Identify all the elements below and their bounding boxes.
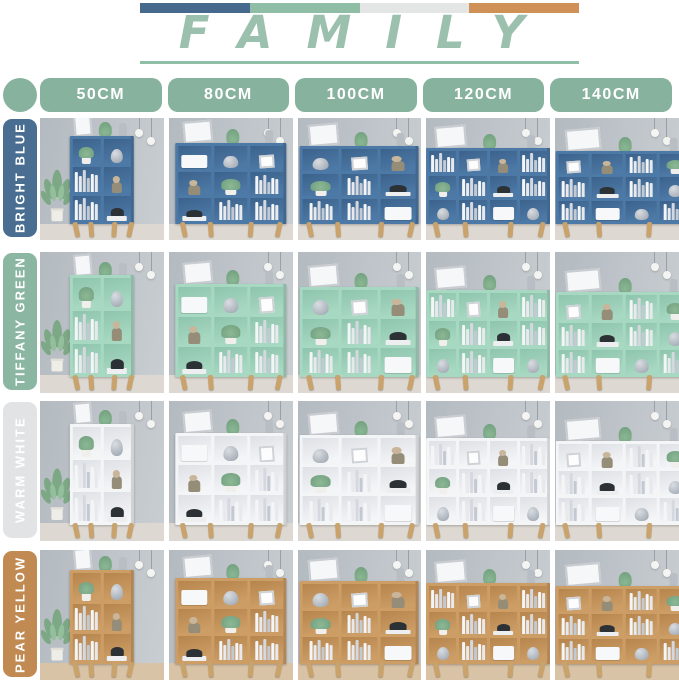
- bookcase: [175, 284, 286, 377]
- shelf-item-hat: [592, 614, 623, 636]
- shelf-item-plant: [429, 612, 456, 635]
- wooden-leg: [508, 222, 514, 237]
- wooden-leg: [378, 662, 384, 677]
- wooden-leg: [646, 222, 652, 237]
- shelf-item-hat: [103, 344, 131, 374]
- shelf-item-books: [626, 444, 657, 468]
- shelf-item-books: [520, 441, 547, 466]
- shelf-item-vase: [660, 471, 679, 495]
- shelf-item-hat: [490, 469, 517, 494]
- shelf-cube: [250, 495, 283, 522]
- shelf-cube: [660, 323, 679, 347]
- shelf-cube: [490, 293, 517, 318]
- shelf-cube: [592, 639, 623, 661]
- picture-frame-icon: [308, 122, 340, 147]
- shelf-cube: [103, 634, 131, 661]
- shelf-grid: [426, 148, 550, 224]
- row-label-bright-blue: BRIGHT BLUE: [3, 119, 37, 237]
- shelf-grid: [175, 284, 286, 377]
- shelf-cube: [103, 427, 131, 457]
- shelf-cube: [558, 471, 589, 495]
- shelf-cube: [429, 349, 456, 374]
- shelf-cube: [460, 293, 487, 318]
- shelf-item-books: [660, 639, 679, 661]
- shelf-item-doll: [103, 460, 131, 490]
- size-button-50cm[interactable]: 50CM: [40, 78, 162, 112]
- shelf-cube: [660, 639, 679, 661]
- shelf-item-books: [73, 167, 101, 192]
- picture-frame-icon: [434, 560, 467, 585]
- shelf-cube: [342, 348, 378, 374]
- picture-frame-icon: [182, 120, 212, 144]
- shelf-cube: [380, 174, 416, 196]
- vase-icon: [527, 276, 535, 290]
- shelf-item-plant: [303, 174, 339, 196]
- shelf-item-books: [73, 604, 101, 631]
- picture-frame-icon: [564, 268, 600, 293]
- row-photos: [40, 118, 679, 240]
- plant-sprig-icon: [619, 572, 632, 587]
- shelf-cube: [626, 323, 657, 347]
- shelf-item-hat: [178, 495, 211, 522]
- shelf-cube: [178, 317, 211, 344]
- photo-warm-white-80cm: [169, 401, 293, 541]
- shelf-cube: [429, 497, 456, 522]
- shelf-item-hat: [178, 636, 211, 661]
- size-button-140cm[interactable]: 140CM: [550, 78, 672, 112]
- shelf-item-vase: [429, 638, 456, 661]
- shelf-cube: [250, 436, 283, 463]
- shelf-cube: [460, 321, 487, 346]
- shelf-cube: [342, 467, 378, 493]
- plant-sprig-icon: [483, 134, 496, 149]
- hanging-lamp-icon: [648, 401, 674, 431]
- shelf-item-frame: [250, 581, 283, 606]
- shelf-item-frame: [460, 586, 487, 609]
- shelf-cube: [520, 200, 547, 221]
- shelf-item-plant: [429, 321, 456, 346]
- picture-frame-icon: [434, 414, 467, 439]
- shelf-item-books: [250, 317, 283, 344]
- wooden-leg: [378, 222, 384, 237]
- shelf-item-books: [73, 344, 101, 374]
- plant-sprig-icon: [226, 129, 239, 144]
- shelf-cube: [520, 612, 547, 635]
- shelf-grid: [426, 583, 550, 664]
- shelf-item-books: [342, 199, 378, 221]
- shelf-cube: [380, 290, 416, 316]
- color-dot: [3, 78, 37, 112]
- shelf-cube: [626, 350, 657, 374]
- shelf-item-doll: [490, 586, 517, 609]
- shelf-item-books: [520, 176, 547, 197]
- shelf-item-books: [214, 636, 247, 661]
- shelf-cube: [592, 589, 623, 611]
- photo-bright-blue-120cm: [426, 118, 550, 240]
- shelf-grid: [175, 433, 286, 525]
- picture-frame-icon: [73, 253, 93, 276]
- shelf-grid: [555, 292, 679, 377]
- shelf-item-books: [250, 465, 283, 492]
- shelf-item-books: [429, 441, 456, 466]
- shelf-item-frame: [250, 287, 283, 314]
- vase-icon: [397, 568, 405, 582]
- shelf-cube: [250, 172, 283, 195]
- shelf-cube: [592, 154, 623, 174]
- shelf-cube: [429, 321, 456, 346]
- shelf-cube: [626, 295, 657, 319]
- shelf-item-plant: [214, 609, 247, 634]
- shelf-item-doll: [103, 604, 131, 631]
- shelf-item-hat: [380, 174, 416, 196]
- plant-sprig-icon: [355, 132, 368, 147]
- shelf-cube: [178, 347, 211, 374]
- shelf-item-frame: [558, 444, 589, 468]
- shelf-item-frame: [250, 436, 283, 463]
- picture-frame-icon: [182, 260, 212, 284]
- shelf-item-doll: [592, 589, 623, 611]
- shelf-item-books: [460, 497, 487, 522]
- shelf-item-vase: [429, 200, 456, 221]
- vase-icon: [265, 130, 273, 144]
- shelf-item-box: [592, 639, 623, 661]
- shelf-item-books: [342, 174, 378, 196]
- shelf-cube: [558, 498, 589, 522]
- shelf-cube: [380, 438, 416, 464]
- shelf-cube: [460, 151, 487, 172]
- shelf-cube: [103, 139, 131, 164]
- plant-sprig-icon: [355, 273, 368, 288]
- shelf-cube: [380, 637, 416, 661]
- shelf-grid: [175, 143, 286, 224]
- shelf-cube: [592, 471, 623, 495]
- bookcase: [175, 578, 286, 664]
- shelf-item-books: [342, 637, 378, 661]
- shelf-item-books: [460, 469, 487, 494]
- bookcase: [70, 424, 134, 525]
- shelf-item-plant: [73, 573, 101, 600]
- shelf-item-plant: [429, 176, 456, 197]
- photo-tiffany-green-140cm: [555, 252, 679, 393]
- shelf-item-frame: [558, 154, 589, 174]
- shelf-item-books: [303, 637, 339, 661]
- shelf-item-frame: [250, 146, 283, 169]
- shelf-cube: [660, 350, 679, 374]
- shelf-cube: [660, 471, 679, 495]
- shelf-item-books: [460, 176, 487, 197]
- shelf-item-books: [342, 611, 378, 635]
- shelf-cube: [490, 321, 517, 346]
- shelf-item-frame: [460, 151, 487, 172]
- shelf-cube: [303, 290, 339, 316]
- shelf-item-books: [520, 321, 547, 346]
- picture-frame-icon: [73, 118, 93, 137]
- wooden-leg: [508, 662, 514, 677]
- shelf-cube: [429, 586, 456, 609]
- bookcase: [70, 570, 134, 664]
- shelf-item-vase: [303, 149, 339, 171]
- shelf-item-vase: [626, 201, 657, 221]
- picture-frame-icon: [564, 562, 600, 587]
- bookcase: [426, 148, 550, 224]
- shelf-item-frame: [558, 295, 589, 319]
- shelf-item-books: [460, 349, 487, 374]
- shelf-cube: [660, 295, 679, 319]
- shelf-cube: [250, 347, 283, 374]
- shelf-item-plant: [660, 444, 679, 468]
- floor: [426, 224, 550, 240]
- vase-icon: [669, 573, 677, 587]
- bookcase: [70, 275, 134, 377]
- shelf-cube: [73, 573, 101, 600]
- shelf-cube: [520, 441, 547, 466]
- photo-warm-white-120cm: [426, 401, 550, 541]
- shelf-item-hat: [592, 323, 623, 347]
- shelf-item-vase: [303, 438, 339, 464]
- shelf-grid: [426, 438, 550, 525]
- shelf-item-frame: [342, 149, 378, 171]
- shelf-item-books: [303, 199, 339, 221]
- shelf-item-box: [380, 496, 416, 522]
- shelf-cube: [660, 498, 679, 522]
- shelf-cube: [342, 611, 378, 635]
- picture-frame-icon: [434, 266, 467, 291]
- shelf-item-books: [520, 151, 547, 172]
- shelf-cube: [73, 278, 101, 308]
- size-button-120cm[interactable]: 120CM: [423, 78, 545, 112]
- shelf-item-books: [520, 586, 547, 609]
- shelf-item-frame: [342, 290, 378, 316]
- shelf-cube: [626, 614, 657, 636]
- vase-icon: [265, 420, 273, 434]
- shelf-grid: [70, 570, 134, 664]
- shelf-grid: [300, 435, 419, 525]
- picture-frame-icon: [308, 412, 340, 437]
- shelf-item-vase: [214, 146, 247, 169]
- shelf-cube: [660, 444, 679, 468]
- photo-bright-blue-80cm: [169, 118, 293, 240]
- bookcase: [426, 438, 550, 525]
- plant-sprig-icon: [226, 270, 239, 285]
- shelf-cube: [103, 167, 131, 192]
- shelf-item-books: [460, 638, 487, 661]
- vase-icon: [118, 411, 126, 425]
- shelf-item-frame: [342, 584, 378, 608]
- photo-tiffany-green-120cm: [426, 252, 550, 393]
- shelf-item-books: [626, 177, 657, 197]
- hanging-lamp-icon: [133, 401, 159, 431]
- plant-sprig-icon: [99, 122, 112, 137]
- shelf-cube: [380, 319, 416, 345]
- shelf-cube: [460, 586, 487, 609]
- shelf-item-books: [214, 198, 247, 221]
- shelf-cube: [250, 146, 283, 169]
- shelf-cube: [303, 637, 339, 661]
- shelf-cube: [660, 154, 679, 174]
- shelf-cube: [520, 469, 547, 494]
- shelf-cube: [303, 467, 339, 493]
- shelf-item-doll: [490, 151, 517, 172]
- shelf-item-books: [626, 614, 657, 636]
- shelf-item-vase: [303, 290, 339, 316]
- shelf-cube: [460, 200, 487, 221]
- picture-frame-icon: [564, 127, 600, 152]
- shelf-item-hat: [592, 177, 623, 197]
- bookcase: [70, 136, 134, 224]
- shelf-item-box: [490, 200, 517, 221]
- photo-tiffany-green-100cm: [298, 252, 422, 393]
- size-button-80cm[interactable]: 80CM: [168, 78, 290, 112]
- shelf-cube: [520, 176, 547, 197]
- wooden-leg: [378, 523, 384, 538]
- shelf-cube: [380, 348, 416, 374]
- shelf-item-vase: [520, 349, 547, 374]
- shelf-grid: [555, 151, 679, 224]
- shelf-cube: [178, 287, 211, 314]
- shelf-item-vase: [660, 177, 679, 197]
- shelf-cube: [342, 290, 378, 316]
- shelf-item-hat: [380, 319, 416, 345]
- photo-tiffany-green-80cm: [169, 252, 293, 393]
- plant-sprig-icon: [355, 567, 368, 582]
- shelf-item-books: [660, 498, 679, 522]
- shelf-item-books: [558, 201, 589, 221]
- shelf-cube: [342, 637, 378, 661]
- shelf-grid: [555, 441, 679, 525]
- shelf-item-box: [380, 199, 416, 221]
- shelf-cube: [592, 177, 623, 197]
- hanging-lamp-icon: [133, 118, 159, 148]
- picture-frame-icon: [308, 263, 340, 288]
- shelf-grid: [70, 424, 134, 525]
- shelf-item-plant: [660, 295, 679, 319]
- shelf-item-doll: [103, 167, 131, 192]
- shelf-cube: [626, 154, 657, 174]
- shelf-item-books: [73, 492, 101, 522]
- shelf-cube: [303, 174, 339, 196]
- photo-pear-yellow-140cm: [555, 550, 679, 680]
- picture-frame-icon: [564, 417, 600, 442]
- shelf-item-vase: [626, 498, 657, 522]
- wooden-leg: [596, 523, 602, 538]
- shelf-cube: [178, 581, 211, 606]
- floor: [169, 663, 293, 680]
- shelf-item-plant: [303, 611, 339, 635]
- floor: [169, 375, 293, 393]
- shelf-cube: [214, 609, 247, 634]
- shelf-item-vase: [520, 638, 547, 661]
- bookcase: [555, 441, 679, 525]
- picture-frame-icon: [182, 555, 212, 579]
- shelf-item-frame: [460, 293, 487, 318]
- shelf-cube: [490, 151, 517, 172]
- plant-sprig-icon: [619, 278, 632, 293]
- shelf-grid: [300, 581, 419, 664]
- shelf-cube: [626, 177, 657, 197]
- vase-icon: [265, 271, 273, 285]
- size-buttons: 50CM 80CM 100CM 120CM 140CM: [40, 78, 672, 112]
- shelf-item-box: [178, 436, 211, 463]
- shelf-item-doll: [380, 438, 416, 464]
- shelf-cube: [73, 139, 101, 164]
- shelf-cube: [380, 584, 416, 608]
- shelf-item-books: [73, 460, 101, 490]
- shelf-item-box: [490, 638, 517, 661]
- shelf-item-vase: [303, 584, 339, 608]
- shelf-item-vase: [214, 436, 247, 463]
- shelf-item-hat: [490, 321, 517, 346]
- shelf-cube: [558, 589, 589, 611]
- shelf-cube: [429, 293, 456, 318]
- shelf-cube: [380, 199, 416, 221]
- shelf-item-books: [429, 151, 456, 172]
- shelf-item-books: [342, 348, 378, 374]
- shelf-cube: [490, 497, 517, 522]
- title-underline: [140, 61, 579, 64]
- shelf-item-box: [592, 201, 623, 221]
- shelf-cube: [303, 584, 339, 608]
- shelf-cube: [73, 311, 101, 341]
- shelf-cube: [342, 149, 378, 171]
- shelf-cube: [178, 172, 211, 195]
- shelf-cube: [342, 199, 378, 221]
- bookcase: [300, 146, 419, 224]
- floor: [298, 663, 422, 680]
- vase-icon: [397, 133, 405, 147]
- row-photos: [40, 550, 679, 680]
- shelf-item-hat: [380, 467, 416, 493]
- shelf-item-plant: [73, 278, 101, 308]
- shelf-cube: [103, 311, 131, 341]
- photo-tiffany-green-50cm: [40, 252, 164, 393]
- photo-pear-yellow-100cm: [298, 550, 422, 680]
- hanging-lamp-icon: [648, 252, 674, 282]
- plant-sprig-icon: [483, 569, 496, 584]
- shelf-cube: [178, 609, 211, 634]
- shelf-item-books: [214, 495, 247, 522]
- shelf-grid: [70, 136, 134, 224]
- bookcase: [300, 581, 419, 664]
- shelf-item-books: [626, 154, 657, 174]
- potted-plant-icon: [41, 161, 73, 227]
- shelf-item-hat: [178, 347, 211, 374]
- shelf-item-vase: [626, 639, 657, 661]
- shelf-cube: [429, 638, 456, 661]
- shelf-cube: [592, 350, 623, 374]
- shelf-item-frame: [342, 438, 378, 464]
- shelf-cube: [592, 498, 623, 522]
- shelf-item-books: [342, 319, 378, 345]
- shelf-cube: [250, 198, 283, 221]
- photo-bright-blue-100cm: [298, 118, 422, 240]
- shelf-item-doll: [380, 290, 416, 316]
- size-button-100cm[interactable]: 100CM: [295, 78, 417, 112]
- bookcase: [555, 292, 679, 377]
- shelf-cube: [490, 200, 517, 221]
- shelf-cube: [214, 146, 247, 169]
- bookcase: [426, 290, 550, 377]
- shelf-cube: [520, 293, 547, 318]
- wooden-leg: [508, 375, 514, 390]
- shelf-item-books: [303, 496, 339, 522]
- shelf-item-books: [626, 589, 657, 611]
- shelf-cube: [214, 287, 247, 314]
- shelf-item-box: [380, 637, 416, 661]
- shelf-cube: [660, 201, 679, 221]
- bookcase: [175, 143, 286, 224]
- vase-icon: [397, 274, 405, 288]
- picture-frame-icon: [308, 557, 340, 582]
